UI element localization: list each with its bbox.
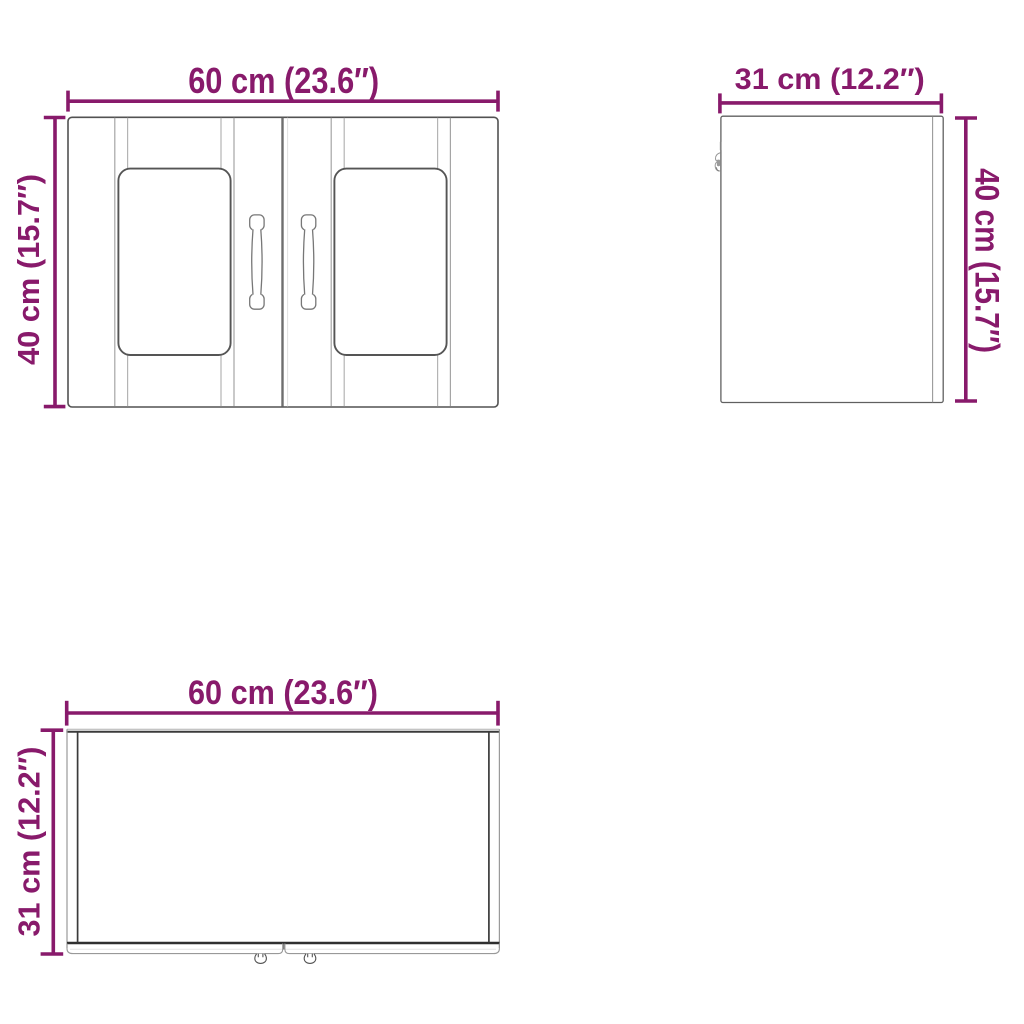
svg-text:40 cm (15.7″): 40 cm (15.7″): [11, 174, 46, 365]
svg-text:40 cm (15.7″): 40 cm (15.7″): [967, 168, 1005, 353]
svg-text:60 cm (23.6″): 60 cm (23.6″): [188, 60, 379, 101]
svg-text:60 cm (23.6″): 60 cm (23.6″): [188, 674, 378, 712]
svg-text:31 cm (12.2″): 31 cm (12.2″): [735, 63, 925, 96]
svg-text:31 cm (12.2″): 31 cm (12.2″): [11, 747, 46, 937]
